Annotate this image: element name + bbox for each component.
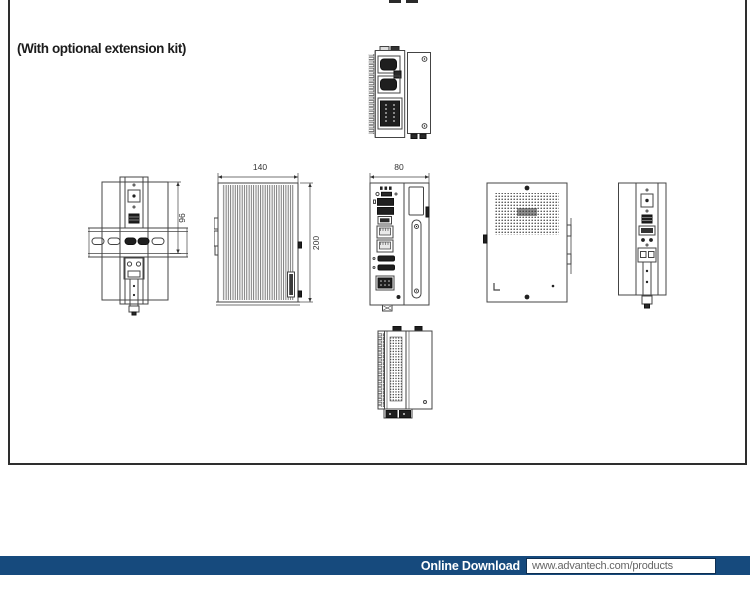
- dim-140-label: 140: [253, 162, 267, 172]
- cropped-text-mark: [389, 0, 401, 3]
- cropped-text-mark: [406, 0, 418, 3]
- dim-96-label: 96: [177, 213, 187, 223]
- footer-bar: Online Download www.advantech.com/produc…: [0, 556, 750, 575]
- download-url: www.advantech.com/products: [526, 558, 716, 574]
- heatsink-side-view-drawing: 140 200: [214, 160, 326, 310]
- extension-kit-note: (With optional extension kit): [17, 41, 186, 56]
- right-side-view-drawing: [618, 178, 670, 312]
- dim-200-label: 200: [311, 236, 321, 250]
- bottom-view-drawing: [376, 326, 434, 422]
- dim-80-label: 80: [394, 162, 404, 172]
- online-download-label: Online Download: [398, 559, 520, 573]
- top-view-drawing: [368, 46, 434, 142]
- rear-vent-view-drawing: [483, 180, 575, 306]
- din-rail-side-view-drawing: 96: [88, 176, 188, 318]
- front-io-view-drawing: 80: [368, 160, 432, 312]
